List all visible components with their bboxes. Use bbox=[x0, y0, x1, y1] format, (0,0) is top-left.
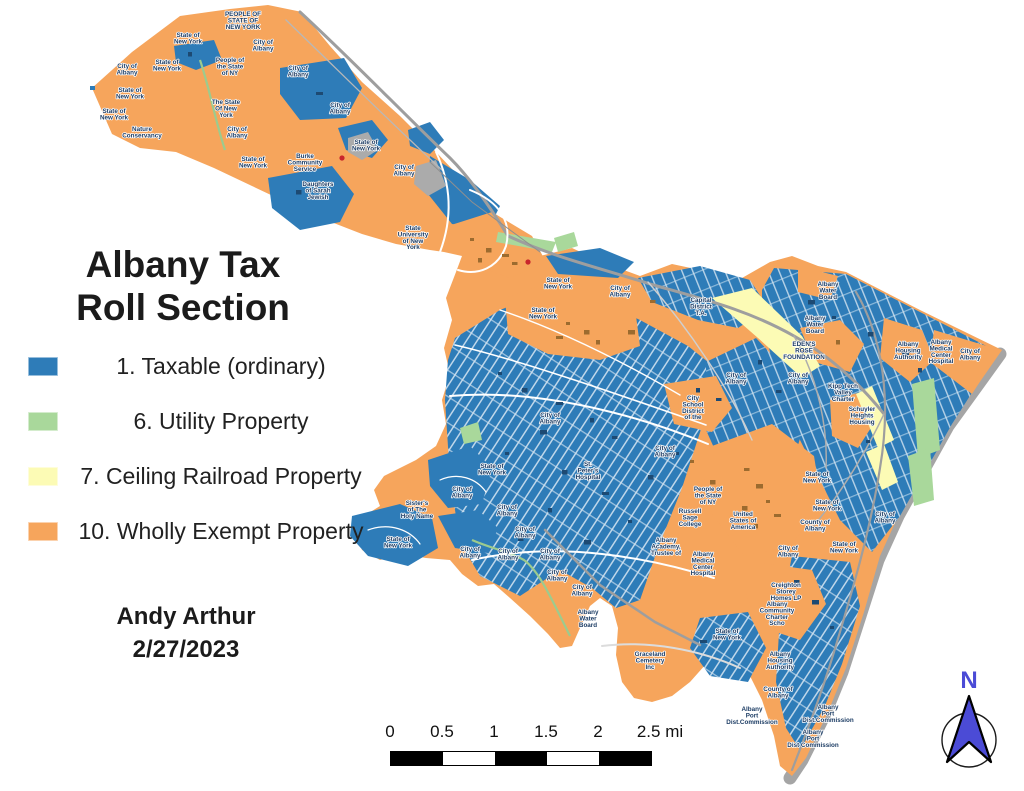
map-label: State ofNew York bbox=[100, 108, 129, 121]
scale-tick-label: 0.5 bbox=[430, 722, 454, 742]
scale-tick-label: 0 bbox=[385, 722, 394, 742]
building-footprint bbox=[716, 398, 722, 401]
map-label: City ofAlbany bbox=[253, 39, 274, 52]
building-footprint bbox=[710, 480, 716, 485]
map-label: State ofNew York bbox=[478, 463, 507, 476]
building-footprint bbox=[700, 640, 707, 643]
building-footprint bbox=[548, 508, 552, 513]
map-label: City ofAlbany bbox=[875, 511, 896, 524]
map-label: City ofAlbany bbox=[778, 545, 799, 558]
map-label: City ofAlbany bbox=[547, 569, 568, 582]
building-footprint bbox=[776, 390, 782, 393]
legend-swatch bbox=[28, 522, 58, 541]
map-label: City ofAlbany bbox=[788, 372, 809, 385]
building-footprint bbox=[522, 388, 528, 393]
building-footprint bbox=[868, 332, 874, 337]
building-footprint bbox=[830, 626, 834, 629]
building-footprint bbox=[628, 520, 632, 523]
building-footprint bbox=[584, 540, 591, 545]
building-footprint bbox=[742, 506, 748, 511]
map-label: AlbanyHousingAuthority bbox=[766, 651, 794, 671]
map-label: City ofAlbany bbox=[497, 504, 518, 517]
legend-item: 1. Taxable (ordinary) bbox=[16, 348, 384, 384]
map-label: State ofNew York bbox=[803, 471, 832, 484]
building-footprint bbox=[628, 330, 635, 335]
building-footprint bbox=[556, 336, 563, 339]
building-footprint bbox=[866, 440, 870, 443]
scale-tick-label: 1.5 bbox=[534, 722, 558, 742]
map-label: AlbanyHousingAuthority bbox=[894, 341, 922, 361]
building-footprint bbox=[478, 258, 482, 263]
map-label: City ofAlbany bbox=[227, 126, 248, 139]
map-label: City ofAlbany bbox=[288, 65, 309, 78]
building-footprint bbox=[836, 340, 840, 345]
albany-tax-map-page: PEOPLE OFSTATE OFNEW YORKState ofNew Yor… bbox=[0, 0, 1024, 791]
legend-label: 1. Taxable (ordinary) bbox=[58, 353, 384, 380]
building-footprint bbox=[596, 340, 600, 345]
map-label: AlbanyWaterBoard bbox=[805, 315, 826, 335]
scale-segment bbox=[443, 752, 495, 765]
legend-item: 7. Ceiling Railroad Property bbox=[16, 458, 384, 494]
building-footprint bbox=[505, 452, 509, 455]
map-label: PEOPLE OFSTATE OFNEW YORK bbox=[225, 11, 261, 31]
map-label: City ofAlbany bbox=[117, 63, 138, 76]
map-label: State ofNew York bbox=[116, 87, 145, 100]
building-footprint bbox=[832, 316, 836, 319]
map-label: State ofNew York bbox=[544, 277, 573, 290]
credit: Andy Arthur 2/27/2023 bbox=[78, 600, 294, 666]
map-label: SchuylerHeightsHousing bbox=[849, 406, 876, 426]
building-footprint bbox=[566, 322, 570, 325]
scale-segment bbox=[495, 752, 547, 765]
building-footprint bbox=[648, 475, 654, 480]
map-label: State ofNew York bbox=[239, 156, 268, 169]
map-label: City ofAlbany bbox=[330, 102, 351, 115]
map-title: Albany Tax Roll Section bbox=[33, 244, 333, 330]
legend-label: 6. Utility Property bbox=[58, 408, 384, 435]
scale-tick-label: 1 bbox=[489, 722, 498, 742]
legend-label: 7. Ceiling Railroad Property bbox=[58, 463, 384, 490]
map-label: City ofAlbany bbox=[452, 486, 473, 499]
map-label: State ofNew York bbox=[384, 536, 413, 549]
building-footprint bbox=[918, 368, 922, 373]
building-footprint bbox=[512, 262, 518, 265]
legend-swatch bbox=[28, 412, 58, 431]
map-label: State ofNew York bbox=[153, 59, 182, 72]
scale-bar-ticks: 00.511.522.5 mi bbox=[378, 722, 698, 744]
building-footprint bbox=[556, 402, 563, 405]
map-label: State ofNew York bbox=[174, 32, 203, 45]
building-footprint bbox=[650, 300, 656, 303]
legend-swatch bbox=[28, 357, 58, 376]
map-label: City ofAlbany bbox=[460, 546, 481, 559]
map-label: City ofAlbany bbox=[726, 372, 747, 385]
credit-date: 2/27/2023 bbox=[78, 633, 294, 666]
map-label: City ofAlbany bbox=[960, 348, 981, 361]
scale-bar-segments bbox=[390, 751, 652, 766]
map-label: AlbanyWaterBoard bbox=[578, 609, 599, 629]
legend-item: 6. Utility Property bbox=[16, 403, 384, 439]
map-label: City ofAlbany bbox=[572, 584, 593, 597]
building-footprint bbox=[502, 254, 509, 257]
scale-segment bbox=[599, 752, 651, 765]
legend-label: 10. Wholly Exempt Property bbox=[58, 518, 384, 545]
map-label: AlbanyMedicalCenterHospital bbox=[691, 551, 716, 577]
credit-author: Andy Arthur bbox=[78, 600, 294, 633]
building-footprint bbox=[540, 430, 547, 435]
building-footprint bbox=[690, 460, 694, 463]
building-footprint bbox=[612, 436, 618, 439]
building-footprint bbox=[188, 52, 192, 57]
building-footprint bbox=[584, 330, 590, 335]
scale-tick-label: 2.5 mi bbox=[637, 722, 683, 742]
map-label: State ofNew York bbox=[713, 628, 742, 641]
building-footprint bbox=[562, 470, 568, 475]
north-arrow-glyph bbox=[947, 696, 991, 762]
building-footprint bbox=[470, 238, 474, 241]
legend-swatch bbox=[28, 467, 58, 486]
map-label: City ofAlbany bbox=[540, 412, 561, 425]
map-label: State ofNew York bbox=[813, 499, 842, 512]
scale-bar: 00.511.522.5 mi bbox=[378, 722, 698, 782]
map-label: AlbanyMedicalCenterHospital bbox=[929, 339, 954, 365]
map-label: City ofAlbany bbox=[515, 526, 536, 539]
building-footprint bbox=[486, 248, 492, 253]
map-label: State ofNew York bbox=[830, 541, 859, 554]
building-footprint bbox=[296, 190, 302, 195]
map-label: City ofAlbany bbox=[655, 445, 676, 458]
legend-item: 10. Wholly Exempt Property bbox=[16, 513, 384, 549]
north-arrow: N bbox=[934, 662, 1004, 782]
building-footprint bbox=[590, 418, 594, 423]
scale-tick-label: 2 bbox=[593, 722, 602, 742]
north-label: N bbox=[960, 667, 977, 694]
building-footprint bbox=[744, 468, 750, 471]
building-footprint bbox=[766, 500, 770, 503]
map-label: AlbanyWaterBoard bbox=[818, 281, 839, 301]
title-line-1: Albany Tax bbox=[33, 244, 333, 287]
map-label: City ofAlbany bbox=[498, 548, 519, 561]
title-line-2: Roll Section bbox=[33, 287, 333, 330]
building-footprint bbox=[602, 492, 609, 495]
building-footprint bbox=[808, 300, 815, 305]
map-label: City ofAlbany bbox=[610, 285, 631, 298]
building-footprint bbox=[758, 360, 762, 365]
scale-segment bbox=[547, 752, 599, 765]
building-footprint bbox=[696, 388, 700, 393]
building-footprint bbox=[316, 92, 323, 95]
map-label: State ofNew York bbox=[529, 307, 558, 320]
building-footprint bbox=[812, 600, 819, 605]
map-label: City ofAlbany bbox=[394, 164, 415, 177]
building-footprint bbox=[774, 514, 781, 517]
map-label: State ofNew York bbox=[352, 139, 381, 152]
legend: 1. Taxable (ordinary)6. Utility Property… bbox=[16, 348, 384, 568]
map-label: City ofAlbany bbox=[540, 548, 561, 561]
building-footprint bbox=[498, 372, 502, 375]
scale-segment bbox=[391, 752, 443, 765]
building-footprint bbox=[756, 484, 763, 489]
